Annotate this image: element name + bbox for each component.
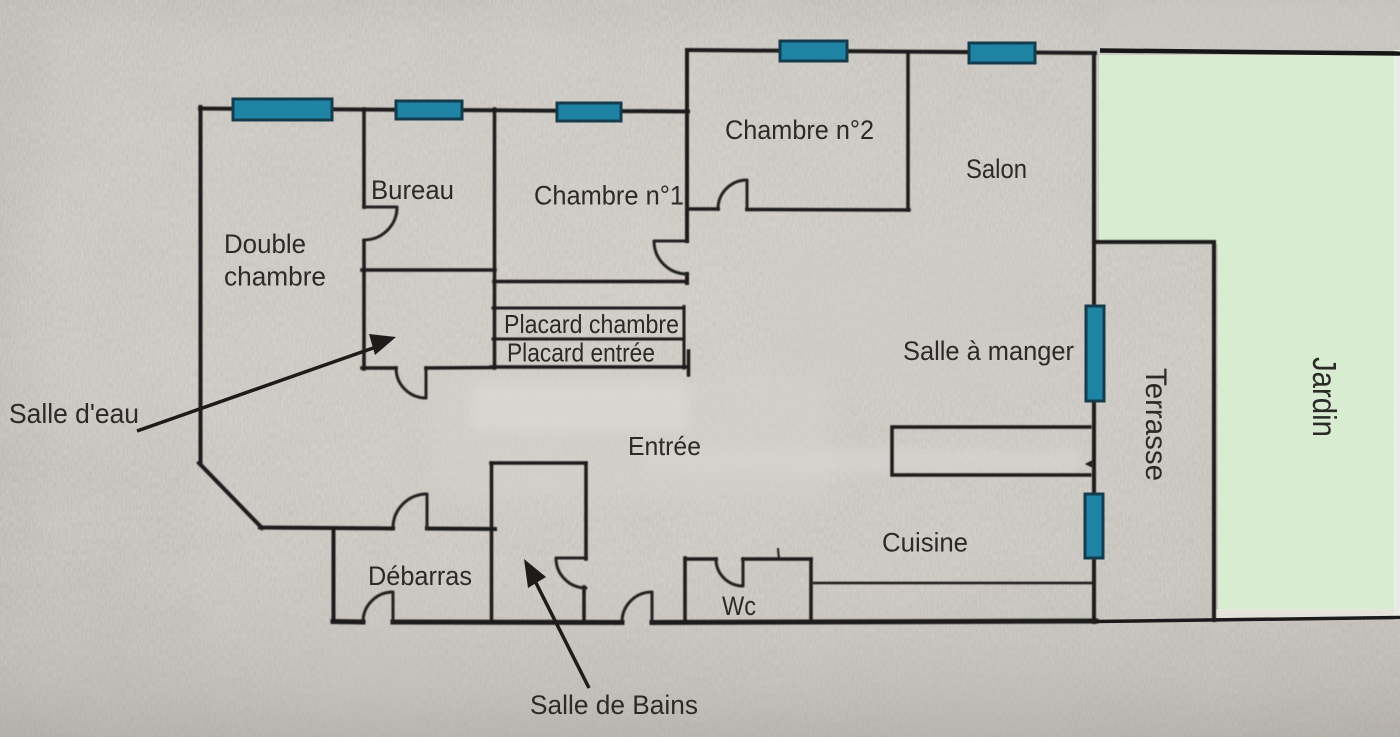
svg-text:Terrasse: Terrasse	[1139, 368, 1172, 481]
svg-text:Bureau: Bureau	[371, 175, 454, 205]
svg-text:Placard chambre: Placard chambre	[504, 309, 679, 339]
svg-text:Salle d'eau: Salle d'eau	[9, 398, 139, 429]
svg-text:Cuisine: Cuisine	[882, 528, 968, 558]
svg-text:Salle à manger: Salle à manger	[903, 336, 1074, 366]
svg-text:Jardin: Jardin	[1306, 357, 1343, 437]
svg-text:Salon: Salon	[966, 154, 1027, 184]
svg-text:chambre: chambre	[224, 262, 326, 292]
svg-text:Chambre n°2: Chambre n°2	[725, 115, 874, 145]
svg-text:Débarras: Débarras	[368, 561, 472, 591]
svg-text:Chambre n°1: Chambre n°1	[534, 181, 684, 211]
svg-text:Wc: Wc	[722, 591, 756, 621]
svg-text:Placard entrée: Placard entrée	[507, 338, 655, 368]
svg-text:Salle de Bains: Salle de Bains	[530, 690, 698, 720]
svg-text:Double: Double	[224, 229, 306, 259]
svg-text:Entrée: Entrée	[628, 431, 701, 461]
